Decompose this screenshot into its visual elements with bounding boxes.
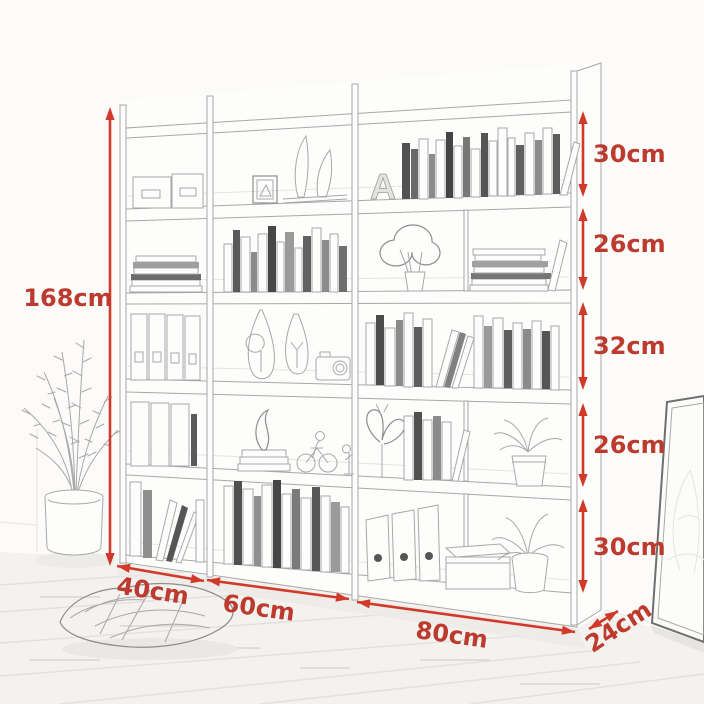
dimension-label-row-2: 32cm	[593, 332, 666, 360]
dimension-label-row-1: 26cm	[593, 230, 666, 258]
dimension-label-row-3: 26cm	[593, 431, 666, 459]
dimension-arrow-total-height	[105, 107, 114, 566]
product-dimension-diagram: A	[0, 0, 704, 704]
file-binders	[131, 314, 200, 380]
dimension-label-total-height: 168cm	[23, 284, 112, 312]
dimension-label-row-0: 30cm	[593, 140, 666, 168]
letter-a-ornament: A	[370, 166, 396, 207]
book-stack	[130, 256, 202, 292]
scene-sketch: A	[0, 0, 704, 704]
thick-binders	[131, 402, 197, 466]
dimension-label-row-4: 30cm	[593, 533, 666, 561]
storage-boxes	[133, 174, 203, 208]
